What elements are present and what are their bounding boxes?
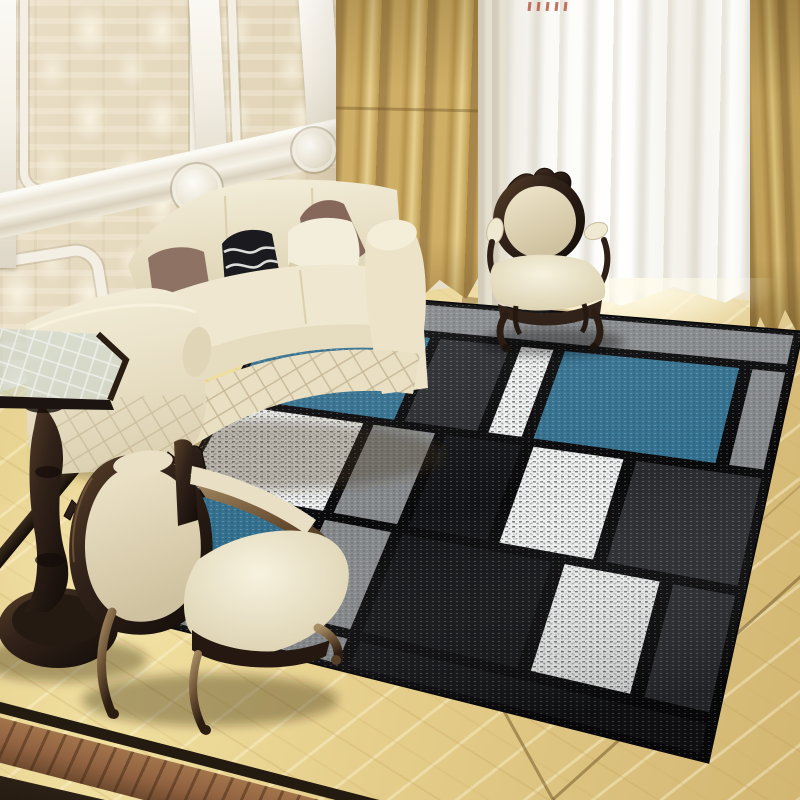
armchair-seat xyxy=(490,255,605,311)
furniture-layer xyxy=(0,0,800,800)
living-room-photo: Product photo of a modern geometric area… xyxy=(0,0,800,800)
armchair-shadow xyxy=(82,674,338,726)
